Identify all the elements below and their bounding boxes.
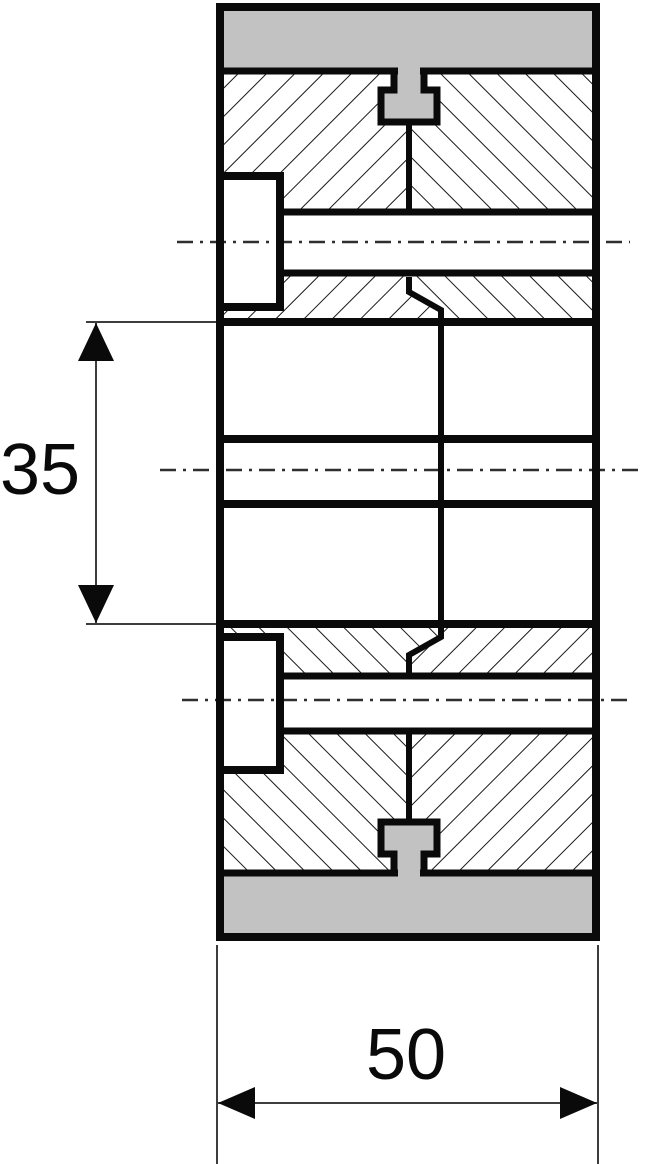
dim50-arrow-right-icon: [560, 1087, 597, 1119]
dimension-50: 50: [217, 945, 598, 1164]
dimension-35: 35: [0, 322, 216, 624]
drawing-canvas: 35 50: [0, 0, 650, 1164]
hub-split-line-middle: [409, 277, 441, 676]
dim50-arrow-left-icon: [218, 1087, 255, 1119]
bearing-recess-bottom: [220, 637, 280, 770]
tread-band-top-cover: [220, 7, 596, 71]
dim35-arrow-down-icon: [78, 585, 114, 623]
wheel-section: [216, 7, 596, 937]
dim50-value: 50: [366, 1015, 446, 1095]
dim35-value: 35: [0, 430, 80, 510]
technical-drawing: 35 50: [0, 0, 650, 1164]
bore-strip-bottom: [280, 680, 594, 727]
tread-band-bottom-cover: [220, 873, 596, 937]
dim35-arrow-up-icon: [78, 323, 114, 361]
